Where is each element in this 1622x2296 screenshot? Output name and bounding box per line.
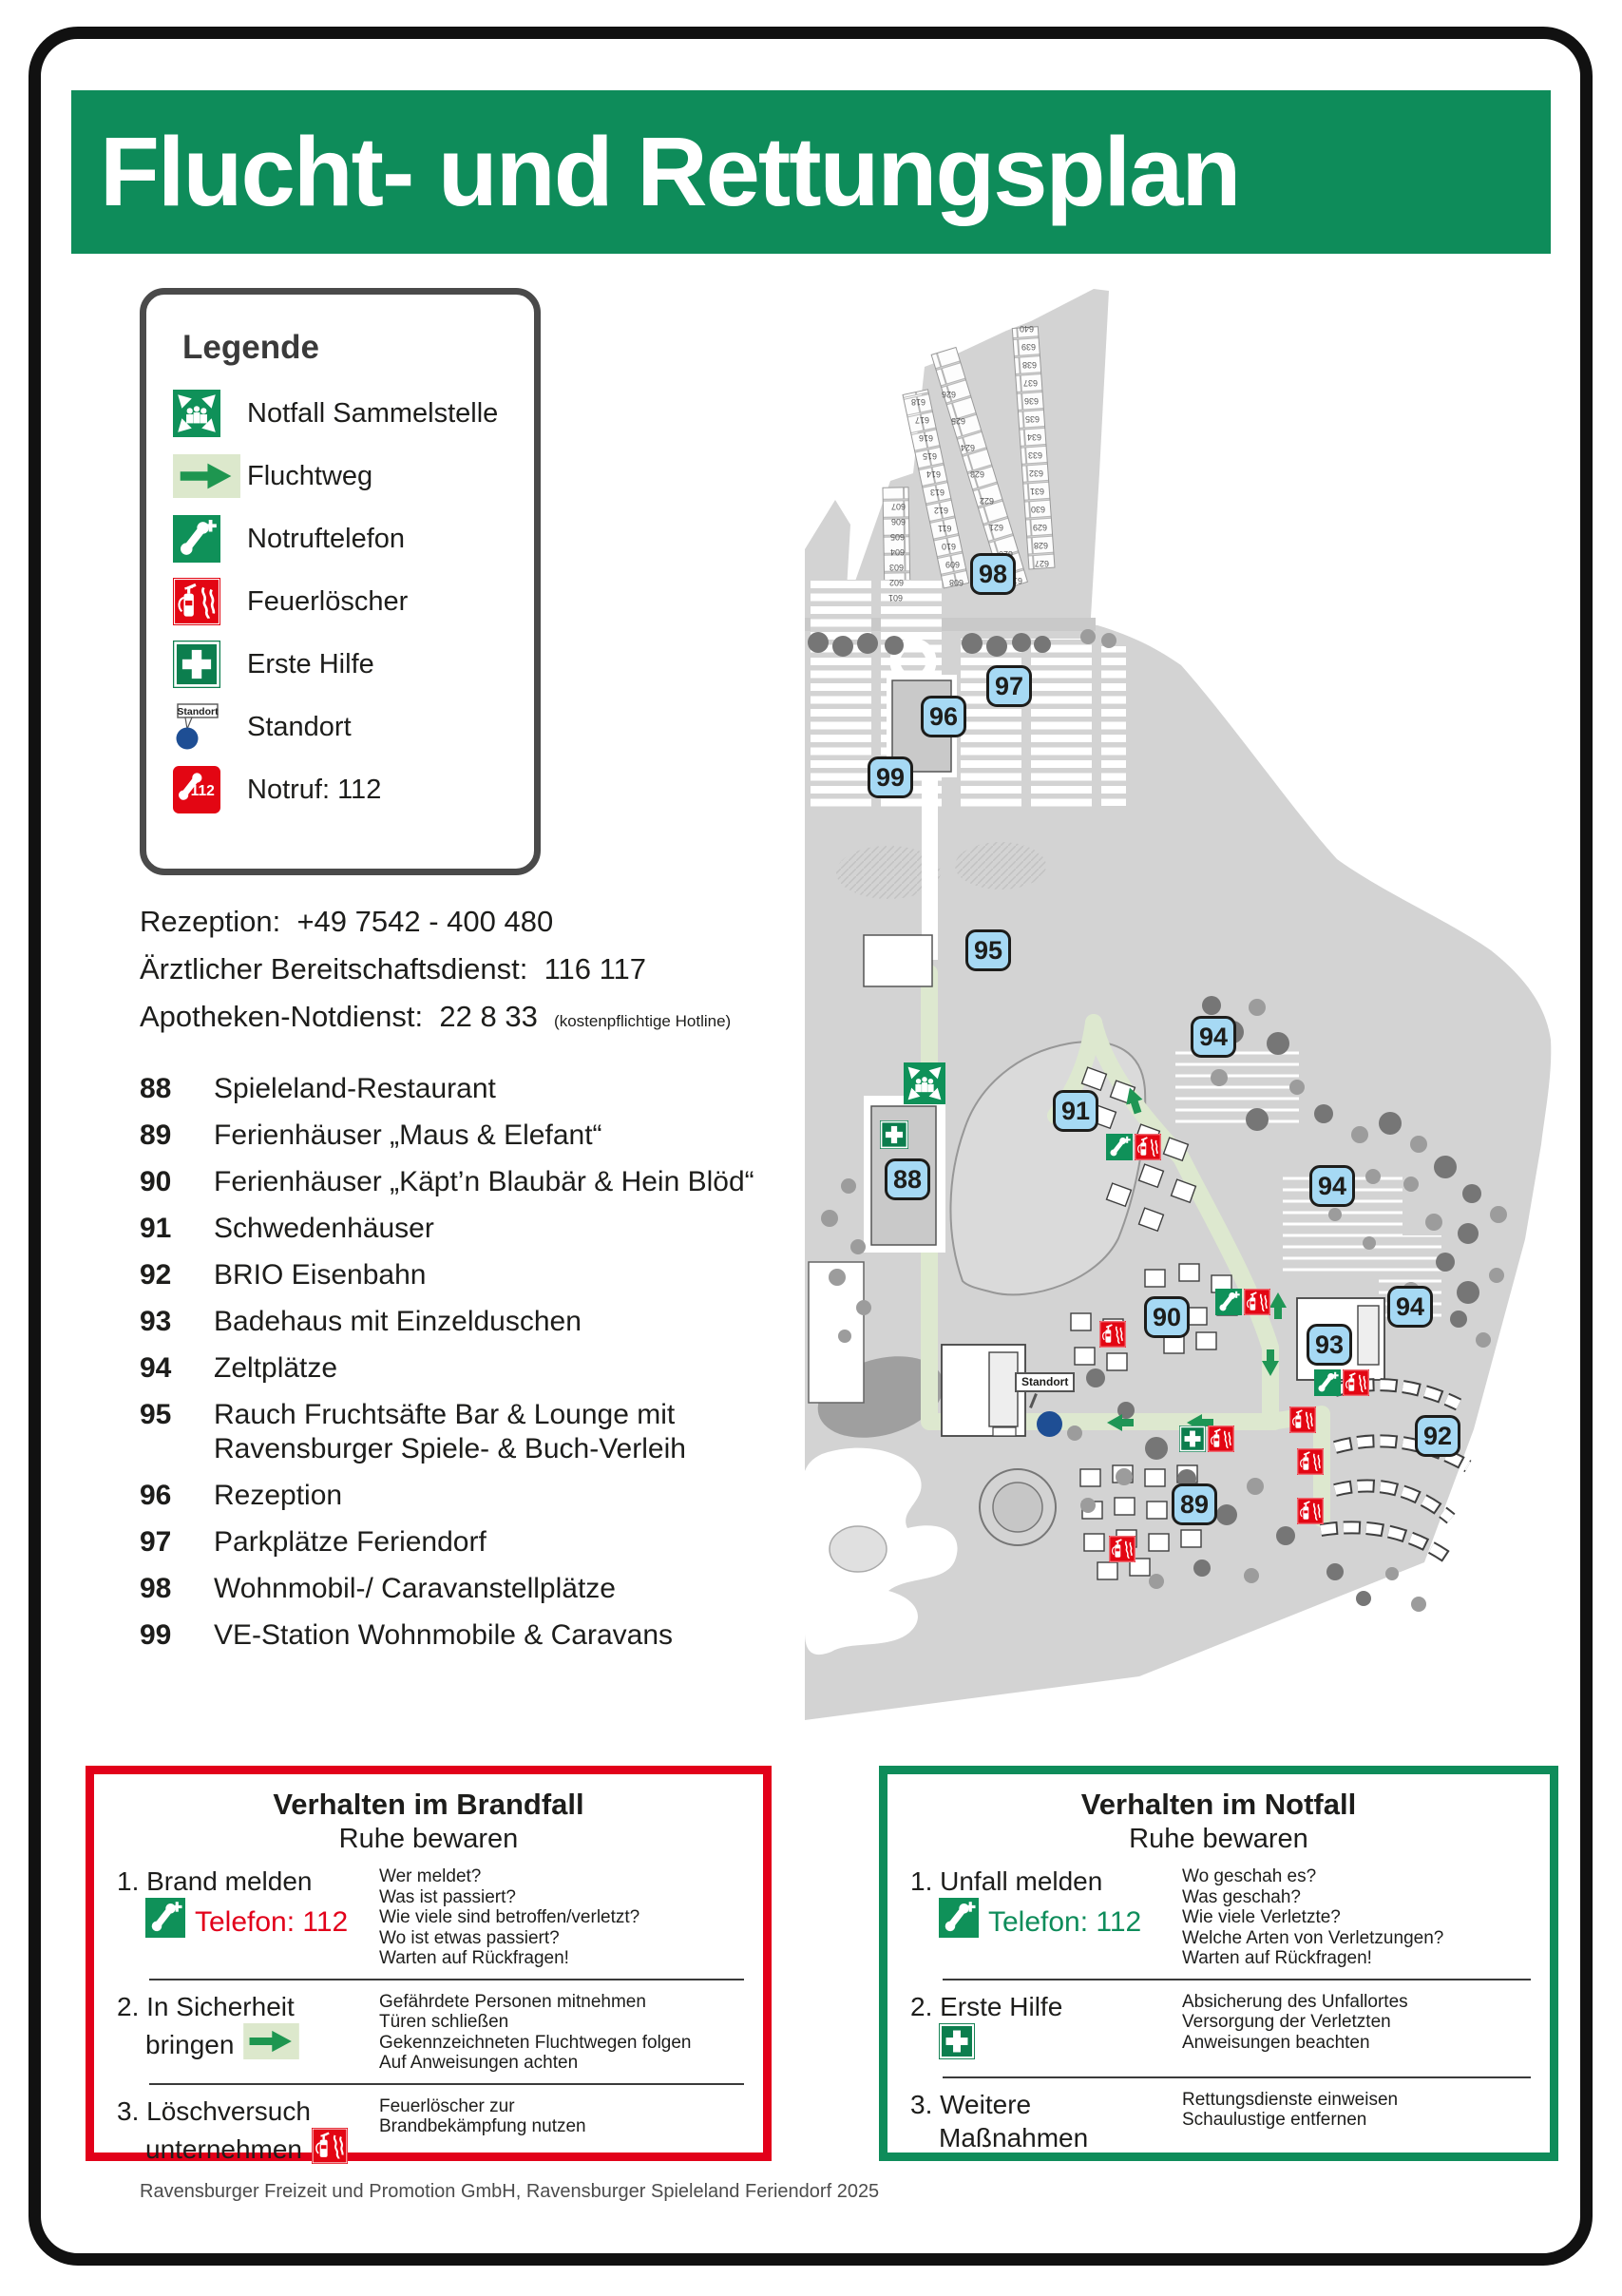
legend-item-emergency-phone: Notruftelefon: [173, 507, 506, 570]
pitch-number: 624: [961, 443, 975, 452]
contact-label: Ärztlicher Bereitschaftsdienst:: [140, 952, 527, 985]
map-badge-92: 92: [1415, 1415, 1460, 1457]
pitch-number: 603: [889, 563, 904, 572]
pitch-number: 606: [891, 517, 906, 526]
contact-value: 116 117: [544, 952, 646, 985]
location-name: Wohnmobil-/ Caravanstellplätze: [214, 1572, 812, 1606]
location-name: Ferienhäuser „Käpt’n Blaubär & Hein Blöd…: [214, 1165, 812, 1199]
svg-text:112: 112: [191, 783, 216, 799]
legend-item-label: Erste Hilfe: [247, 649, 374, 680]
location-row: 88 Spieleland-Restaurant: [140, 1072, 812, 1106]
box-detail-line: Gefährdete Personen mitnehmen: [379, 1992, 746, 2013]
map-badge-94: 94: [1309, 1165, 1355, 1207]
escape-route-arrow-icon: [173, 454, 247, 498]
box-action-text: 3. Löschversuch: [117, 2095, 311, 2128]
svg-text:Standort: Standort: [177, 706, 219, 717]
escape-route-arrow-icon: [243, 2023, 299, 2067]
box-row: 3. Löschversuchunternehmen Feuerlöscher …: [109, 2085, 748, 2181]
pitch-number: 632: [1029, 469, 1043, 478]
emergency-phone-icon: [939, 1898, 979, 1945]
location-name: Schwedenhäuser: [214, 1212, 812, 1246]
pitch-number: 604: [890, 547, 905, 557]
map-badge-89: 89: [1172, 1483, 1217, 1525]
location-name: Parkplätze Feriendorf: [214, 1525, 812, 1559]
pitch-number: 609: [945, 560, 960, 569]
legend-items: Notfall Sammelstelle Fluchtweg Notruftel…: [173, 382, 506, 821]
legend-item-first-aid: Erste Hilfe: [173, 633, 506, 696]
fire-extinguisher-icon: [1297, 1448, 1324, 1475]
map-fire-extinguisher-icon: [1297, 1498, 1324, 1524]
pitch-number: 617: [915, 415, 929, 425]
legend-item-label: Notruftelefon: [247, 524, 405, 555]
contact-label: Rezeption:: [140, 905, 280, 938]
box-subtitle: Ruhe bewaren: [903, 1824, 1535, 1855]
fire-extinguisher-icon: [1099, 1321, 1126, 1348]
contact-row: Rezeption: +49 7542 - 400 480: [140, 905, 805, 939]
standort-marker: [1037, 1411, 1062, 1437]
fire-extinguisher-icon: [1289, 1406, 1316, 1433]
fire-behaviour-box: Verhalten im Brandfall Ruhe bewaren 1. B…: [86, 1766, 772, 2161]
pitch-number: 610: [942, 542, 956, 551]
fire-extinguisher-icon: [1297, 1498, 1324, 1524]
box-title: Verhalten im Brandfall: [109, 1788, 748, 1822]
title-banner: Flucht- und Rettungsplan: [71, 90, 1551, 254]
box-row: 1. Brand melden Telefon: 112 Wer meldet?…: [109, 1855, 748, 1979]
map-badge-95: 95: [965, 929, 1011, 971]
contact-label: Apotheken-Notdienst:: [140, 1000, 423, 1033]
location-name: Rauch Fruchtsäfte Bar & Lounge mit Raven…: [214, 1398, 812, 1466]
map-first-aid-icon: [1179, 1425, 1206, 1452]
legend-box: Legende Notfall Sammelstelle Fluchtweg N…: [140, 288, 541, 875]
box-detail-line: Wo ist etwas passiert?: [379, 1928, 746, 1949]
box-action-text: 1. Unfall melden: [910, 1865, 1102, 1898]
fire-extinguisher-icon: [173, 578, 247, 625]
map-badge-96: 96: [921, 696, 966, 737]
location-number: 91: [140, 1212, 214, 1246]
pitch-number: 622: [980, 496, 994, 506]
box-action-text: 2. Erste Hilfe: [910, 1990, 1062, 2023]
legend-item-label: Notruf: 112: [247, 775, 381, 806]
pitch-number: 607: [891, 502, 906, 511]
pitch-number: 637: [1023, 378, 1038, 388]
first-aid-icon: [880, 1120, 908, 1149]
box-detail-line: Rettungsdienste einweisen: [1182, 2090, 1533, 2111]
box-action-text: bringen: [145, 2028, 234, 2061]
box-row: 3. WeitereMaßnahmen Rettungsdienste einw…: [903, 2078, 1535, 2164]
pitch-number: 629: [1033, 523, 1047, 532]
box-detail-line: Anweisungen beachten: [1182, 2033, 1533, 2054]
pitch-number: 614: [926, 469, 941, 479]
assembly-point-icon: [904, 1062, 945, 1104]
location-number: 97: [140, 1525, 214, 1559]
box-row: 2. Erste Hilfe Absicherung des Unfallort…: [903, 1980, 1535, 2076]
box-detail-line: Türen schließen: [379, 2012, 746, 2033]
map-fire-extinguisher-icon: [1135, 1134, 1161, 1160]
location-number: 89: [140, 1119, 214, 1153]
box-detail-line: Warten auf Rückfragen!: [379, 1948, 746, 1969]
map-fire-extinguisher-icon: [1099, 1321, 1126, 1348]
box-detail-line: Gekennzeichneten Fluchtwegen folgen: [379, 2033, 746, 2054]
map-emergency-phone-icon: [1215, 1289, 1242, 1315]
location-name: Spieleland-Restaurant: [214, 1072, 812, 1106]
first-aid-icon: [939, 2023, 975, 2059]
location-name: Badehaus mit Einzelduschen: [214, 1305, 812, 1339]
first-aid-icon: [173, 641, 247, 688]
box-row: 2. In Sicherheitbringen Gefährdete Perso…: [109, 1980, 748, 2083]
location-number: 88: [140, 1072, 214, 1106]
legend-item-fire-extinguisher: Feuerlöscher: [173, 570, 506, 633]
assembly-point-icon: [173, 390, 247, 437]
pitch-number: 618: [911, 397, 925, 407]
fire-extinguisher-icon: [173, 578, 220, 625]
box-action-text: Telefon: 112: [195, 1905, 348, 1939]
map-emergency-phone-icon: [1314, 1369, 1341, 1396]
pitch-number: 630: [1031, 505, 1045, 514]
first-aid-icon: [939, 2023, 975, 2067]
emergency-phone-icon: [173, 515, 247, 563]
location-name: VE-Station Wohnmobile & Caravans: [214, 1618, 812, 1653]
first-aid-icon: [1179, 1425, 1206, 1452]
pitch-number: 605: [890, 532, 905, 542]
contact-note: (kostenpflichtige Hotline): [554, 1012, 731, 1030]
box-subtitle: Ruhe bewaren: [109, 1824, 748, 1855]
location-row: 91 Schwedenhäuser: [140, 1212, 812, 1246]
first-aid-icon: [173, 641, 220, 688]
location-row: 90 Ferienhäuser „Käpt’n Blaubär & Hein B…: [140, 1165, 812, 1199]
pitch-number: 635: [1025, 414, 1040, 424]
map-fire-extinguisher-icon: [1109, 1536, 1135, 1562]
box-detail-line: Warten auf Rückfragen!: [1182, 1948, 1533, 1969]
escape-arrow-icon: [173, 454, 240, 498]
legend-item-label: Feuerlöscher: [247, 586, 408, 618]
box-detail-line: Absicherung des Unfallortes: [1182, 1992, 1533, 2013]
map-fire-extinguisher-icon: [1343, 1369, 1369, 1396]
legend-item-location-marker: Standort Standort: [173, 696, 506, 758]
box-detail-line: Schaulustige entfernen: [1182, 2110, 1533, 2131]
location-index: 88 Spieleland-Restaurant89 Ferienhäuser …: [140, 1072, 812, 1665]
pitch-number: 626: [942, 390, 956, 399]
map-badge-98: 98: [970, 553, 1016, 595]
map-badge-97: 97: [986, 665, 1032, 707]
emergency-phone-icon: [145, 1898, 185, 1945]
map-fire-extinguisher-icon: [1289, 1406, 1316, 1433]
pitch-number: 633: [1028, 450, 1042, 460]
emergency-phone-icon: [939, 1898, 979, 1938]
box-row: 1. Unfall melden Telefon: 112 Wo geschah…: [903, 1855, 1535, 1979]
pitch-number: 640: [1020, 324, 1034, 334]
location-row: 93 Badehaus mit Einzelduschen: [140, 1305, 812, 1339]
legend-item-emergency-call: 112 Notruf: 112: [173, 758, 506, 821]
contact-value: +49 7542 - 400 480: [296, 905, 553, 938]
pitch-number: 631: [1030, 487, 1044, 496]
location-number: 92: [140, 1258, 214, 1292]
location-number: 95: [140, 1398, 214, 1466]
map-overlay: 6016026036046056066076086096106116126136…: [803, 283, 1554, 1724]
site-map: 6016026036046056066076086096106116126136…: [803, 283, 1554, 1724]
map-emergency-phone-icon: [1106, 1134, 1133, 1160]
pitch-number: 634: [1027, 432, 1041, 442]
fire-extinguisher-icon: [1109, 1536, 1135, 1562]
box-action-text: 2. In Sicherheit: [117, 1990, 295, 2023]
pitch-number: 612: [934, 506, 948, 515]
legend-item-label: Notfall Sammelstelle: [247, 398, 498, 430]
standort-pointer: [1029, 1393, 1038, 1408]
emergency-contacts: Rezeption: +49 7542 - 400 480 Ärztlicher…: [140, 905, 805, 1052]
map-assembly-point-icon: [904, 1062, 945, 1104]
location-row: 94 Zeltplätze: [140, 1351, 812, 1386]
pitch-number: 608: [949, 578, 964, 587]
box-action-text: Maßnahmen: [939, 2121, 1088, 2154]
pitch-number: 616: [919, 433, 933, 443]
location-row: 89 Ferienhäuser „Maus & Elefant“: [140, 1119, 812, 1153]
contact-row: Apotheken-Notdienst: 22 8 33 (kostenpfli…: [140, 1000, 805, 1039]
box-detail-line: Was geschah?: [1182, 1887, 1533, 1908]
pitch-number: 602: [889, 578, 904, 587]
pitch-number: 601: [888, 593, 903, 603]
map-badge-91: 91: [1053, 1090, 1098, 1132]
box-title: Verhalten im Notfall: [903, 1788, 1535, 1822]
location-number: 98: [140, 1572, 214, 1606]
map-badge-88: 88: [885, 1158, 930, 1200]
map-badge-99: 99: [868, 756, 913, 798]
emergency-phone-icon: [1314, 1369, 1341, 1396]
emergency-phone-icon: [145, 1898, 185, 1938]
pitch-number: 611: [938, 524, 951, 533]
box-detail-line: Auf Anweisungen achten: [379, 2053, 746, 2074]
location-row: 97 Parkplätze Feriendorf: [140, 1525, 812, 1559]
location-row: 95 Rauch Fruchtsäfte Bar & Lounge mit Ra…: [140, 1398, 812, 1466]
box-detail-line: Wie viele sind betroffen/verletzt?: [379, 1907, 746, 1928]
map-fire-extinguisher-icon: [1244, 1289, 1270, 1315]
location-row: 98 Wohnmobil-/ Caravanstellplätze: [140, 1572, 812, 1606]
location-row: 96 Rezeption: [140, 1479, 812, 1513]
map-badge-93: 93: [1307, 1324, 1352, 1366]
emergency-call-112-icon: 112: [173, 766, 220, 813]
location-marker-icon: Standort: [173, 703, 247, 751]
box-detail-line: Welche Arten von Verletzungen?: [1182, 1928, 1533, 1949]
fire-extinguisher-icon: [312, 2128, 348, 2172]
pitch-number: 627: [1035, 559, 1049, 568]
map-badge-94: 94: [1191, 1016, 1236, 1058]
legend-heading: Legende: [182, 329, 319, 367]
standort-label: Standort: [1015, 1372, 1075, 1392]
box-detail-line: Wer meldet?: [379, 1866, 746, 1887]
box-action-text: Telefon: 112: [988, 1905, 1141, 1939]
fire-extinguisher-icon: [1244, 1289, 1270, 1315]
pitch-number: 638: [1022, 360, 1037, 370]
contact-row: Ärztlicher Bereitschaftsdienst: 116 117: [140, 952, 805, 986]
location-number: 94: [140, 1351, 214, 1386]
fire-extinguisher-icon: [1135, 1134, 1161, 1160]
box-detail-line: Versorgung der Verletzten: [1182, 2012, 1533, 2033]
footer-credit: Ravensburger Freizeit und Promotion GmbH…: [140, 2181, 879, 2203]
legend-item-assembly-point: Notfall Sammelstelle: [173, 382, 506, 445]
location-row: 99 VE-Station Wohnmobile & Caravans: [140, 1618, 812, 1653]
pitch-number: 636: [1024, 396, 1039, 406]
location-marker-icon: Standort: [173, 703, 220, 751]
pitch-number: 625: [951, 416, 965, 426]
location-number: 96: [140, 1479, 214, 1513]
location-name: Rezeption: [214, 1479, 812, 1513]
legend-item-label: Fluchtweg: [247, 461, 372, 492]
map-fire-extinguisher-icon: [1297, 1448, 1324, 1475]
box-action-text: unternehmen: [145, 2133, 302, 2166]
emergency-call-icon: 112: [173, 766, 247, 813]
emergency-phone-icon: [1215, 1289, 1242, 1315]
emergency-behaviour-box: Verhalten im Notfall Ruhe bewaren 1. Unf…: [879, 1766, 1558, 2161]
fire-extinguisher-icon: [1208, 1425, 1234, 1452]
pitch-number: 615: [923, 451, 937, 461]
pitch-number: 628: [1034, 541, 1048, 550]
legend-item-escape-route-arrow: Fluchtweg: [173, 445, 506, 507]
map-fire-extinguisher-icon: [1208, 1425, 1234, 1452]
location-number: 93: [140, 1305, 214, 1339]
location-row: 92 BRIO Eisenbahn: [140, 1258, 812, 1292]
map-badge-90: 90: [1144, 1296, 1190, 1338]
location-name: Ferienhäuser „Maus & Elefant“: [214, 1119, 812, 1153]
fire-extinguisher-icon: [312, 2128, 348, 2164]
pitch-number: 623: [970, 469, 984, 479]
box-detail-line: Wo geschah es?: [1182, 1866, 1533, 1887]
pitch-number: 621: [989, 523, 1003, 532]
location-number: 90: [140, 1165, 214, 1199]
box-action-text: 1. Brand melden: [117, 1865, 312, 1898]
map-badge-94: 94: [1387, 1286, 1433, 1328]
legend-item-label: Standort: [247, 712, 352, 743]
emergency-phone-icon: [173, 515, 220, 563]
location-number: 99: [140, 1618, 214, 1653]
location-name: BRIO Eisenbahn: [214, 1258, 812, 1292]
box-detail-line: Was ist passiert?: [379, 1887, 746, 1908]
box-detail-line: Wie viele Verletzte?: [1182, 1907, 1533, 1928]
escape-arrow-icon: [243, 2023, 299, 2059]
emergency-phone-icon: [1106, 1134, 1133, 1160]
location-name: Zeltplätze: [214, 1351, 812, 1386]
fire-extinguisher-icon: [1343, 1369, 1369, 1396]
page-title: Flucht- und Rettungsplan: [100, 116, 1239, 228]
box-detail-line: Feuerlöscher zur: [379, 2096, 746, 2117]
box-detail-line: Brandbekämpfung nutzen: [379, 2116, 746, 2137]
pitch-number: 613: [930, 488, 945, 497]
box-action-text: 3. Weitere: [910, 2088, 1031, 2121]
map-first-aid-icon: [880, 1120, 908, 1149]
assembly-point-icon: [173, 390, 220, 437]
pitch-number: 639: [1021, 342, 1036, 352]
contact-value: 22 8 33: [439, 1000, 537, 1033]
